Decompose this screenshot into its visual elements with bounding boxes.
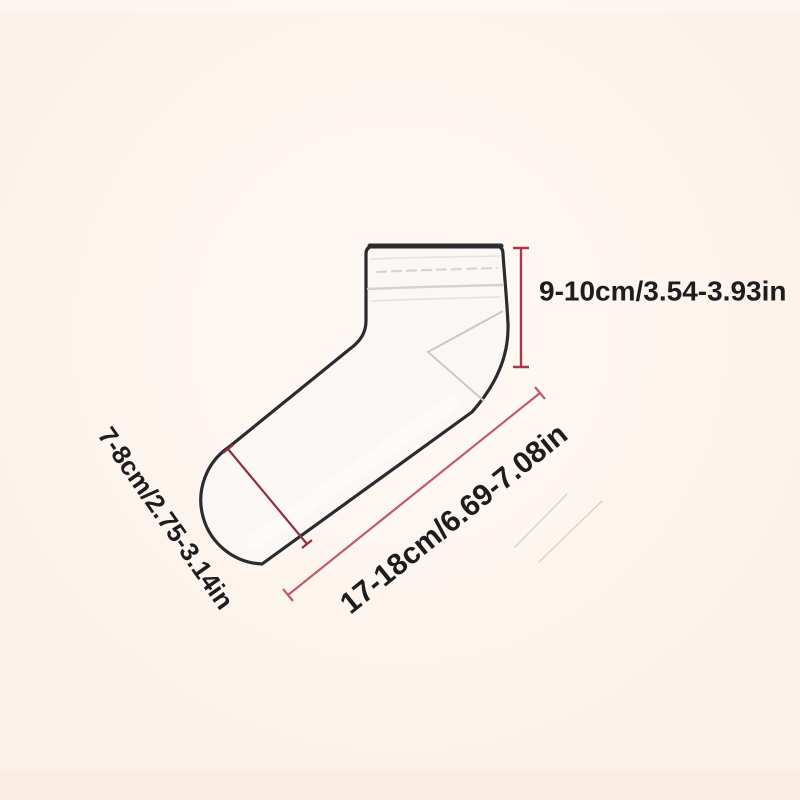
top-light-band bbox=[0, 0, 800, 13]
size-diagram-canvas: 9-10cm/3.54-3.93in 17-18cm/6.69-7.08in 7… bbox=[0, 0, 800, 800]
bottom-tint-band bbox=[0, 769, 800, 800]
size-diagram: 9-10cm/3.54-3.93in 17-18cm/6.69-7.08in 7… bbox=[0, 0, 800, 800]
cuff-height-label: 9-10cm/3.54-3.93in bbox=[539, 276, 787, 307]
